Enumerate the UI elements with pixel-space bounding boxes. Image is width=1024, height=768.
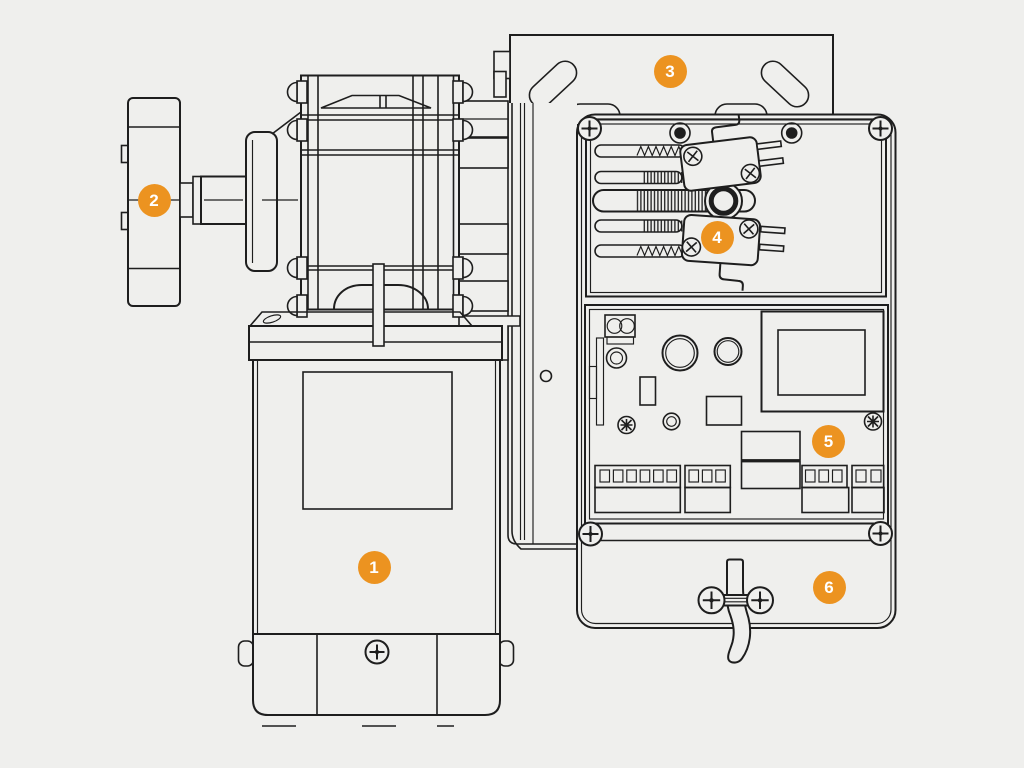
callout-3-number: 3: [665, 63, 674, 80]
diagram-artwork: [0, 0, 1024, 768]
callout-2-badge[interactable]: 2: [138, 184, 171, 217]
gearbox-front-cover: [246, 132, 277, 271]
callout-4-number: 4: [712, 229, 721, 246]
callout-1-badge[interactable]: 1: [358, 551, 391, 584]
corner-screw: [869, 117, 892, 140]
callout-2-number: 2: [149, 192, 158, 209]
motor-body: [239, 360, 514, 726]
callout-1-number: 1: [369, 559, 378, 576]
corner-screw: [578, 117, 601, 140]
corner-screw: [579, 523, 602, 546]
callout-5-number: 5: [824, 433, 833, 450]
callout-3-badge[interactable]: 3: [654, 55, 687, 88]
corner-screw: [869, 522, 892, 545]
end-cap-screw: [366, 641, 389, 664]
callout-4-badge[interactable]: 4: [701, 221, 734, 254]
callout-5-badge[interactable]: 5: [812, 425, 845, 458]
callout-6-number: 6: [824, 579, 833, 596]
gearbox-center-rod: [373, 264, 384, 346]
board-screw-right: [865, 413, 882, 430]
callout-6-badge[interactable]: 6: [813, 571, 846, 604]
parts-diagram: 1 2 3 4 5 6: [0, 0, 1024, 768]
board-screw-left: [618, 417, 635, 434]
